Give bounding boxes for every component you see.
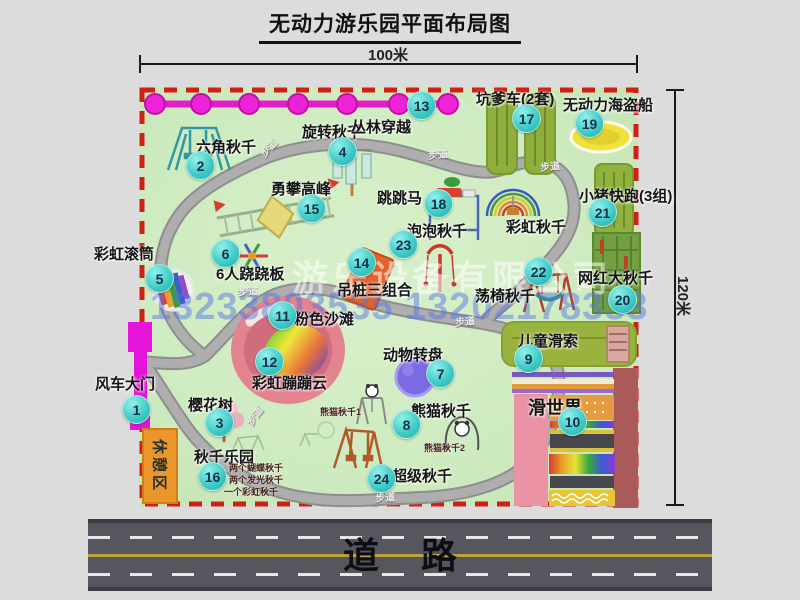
road-strip: 道路 xyxy=(88,519,712,591)
watermark-phone-numbers: 13233803535 13202178333 xyxy=(150,286,649,329)
animal-turntable-icon xyxy=(396,358,434,396)
rest-area-label: 休憩区 xyxy=(150,439,171,493)
slide-world-icon xyxy=(512,368,638,508)
road-label: 道路 xyxy=(301,527,499,579)
pirate-ship-icon xyxy=(571,122,631,152)
piggy-run-icon xyxy=(595,164,633,236)
screenshot-canvas: 无动力游乐园平面布局图 100米 120米 xyxy=(0,0,800,600)
rest-area-block: 休憩区 xyxy=(142,428,178,504)
